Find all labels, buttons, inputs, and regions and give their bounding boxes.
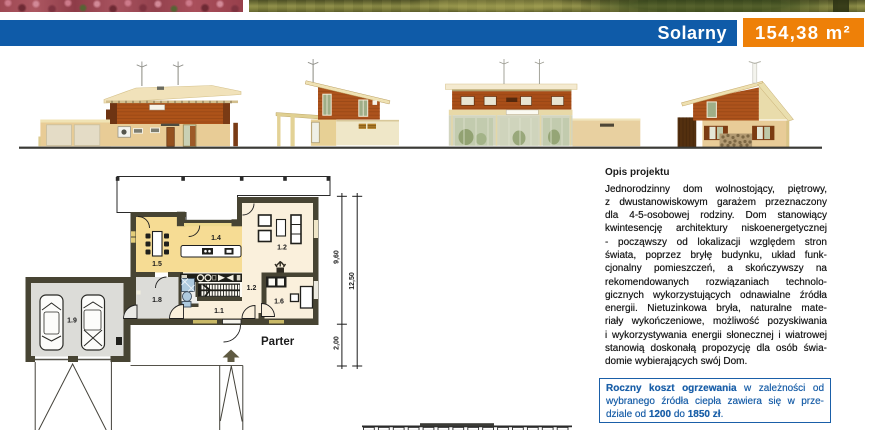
svg-text:Parter: Parter — [261, 336, 295, 348]
svg-text:12,50: 12,50 — [349, 272, 356, 290]
svg-text:1.6: 1.6 — [274, 299, 284, 306]
svg-text:1.2: 1.2 — [247, 285, 257, 292]
svg-text:1.2: 1.2 — [277, 245, 287, 252]
svg-text:1.8: 1.8 — [152, 297, 162, 304]
svg-text:1.1: 1.1 — [214, 308, 224, 315]
svg-text:1.5: 1.5 — [152, 261, 162, 268]
svg-text:1.4: 1.4 — [211, 235, 221, 242]
svg-text:2,00: 2,00 — [334, 336, 341, 350]
svg-text:9,60: 9,60 — [334, 250, 341, 264]
svg-text:1.9: 1.9 — [67, 318, 77, 325]
